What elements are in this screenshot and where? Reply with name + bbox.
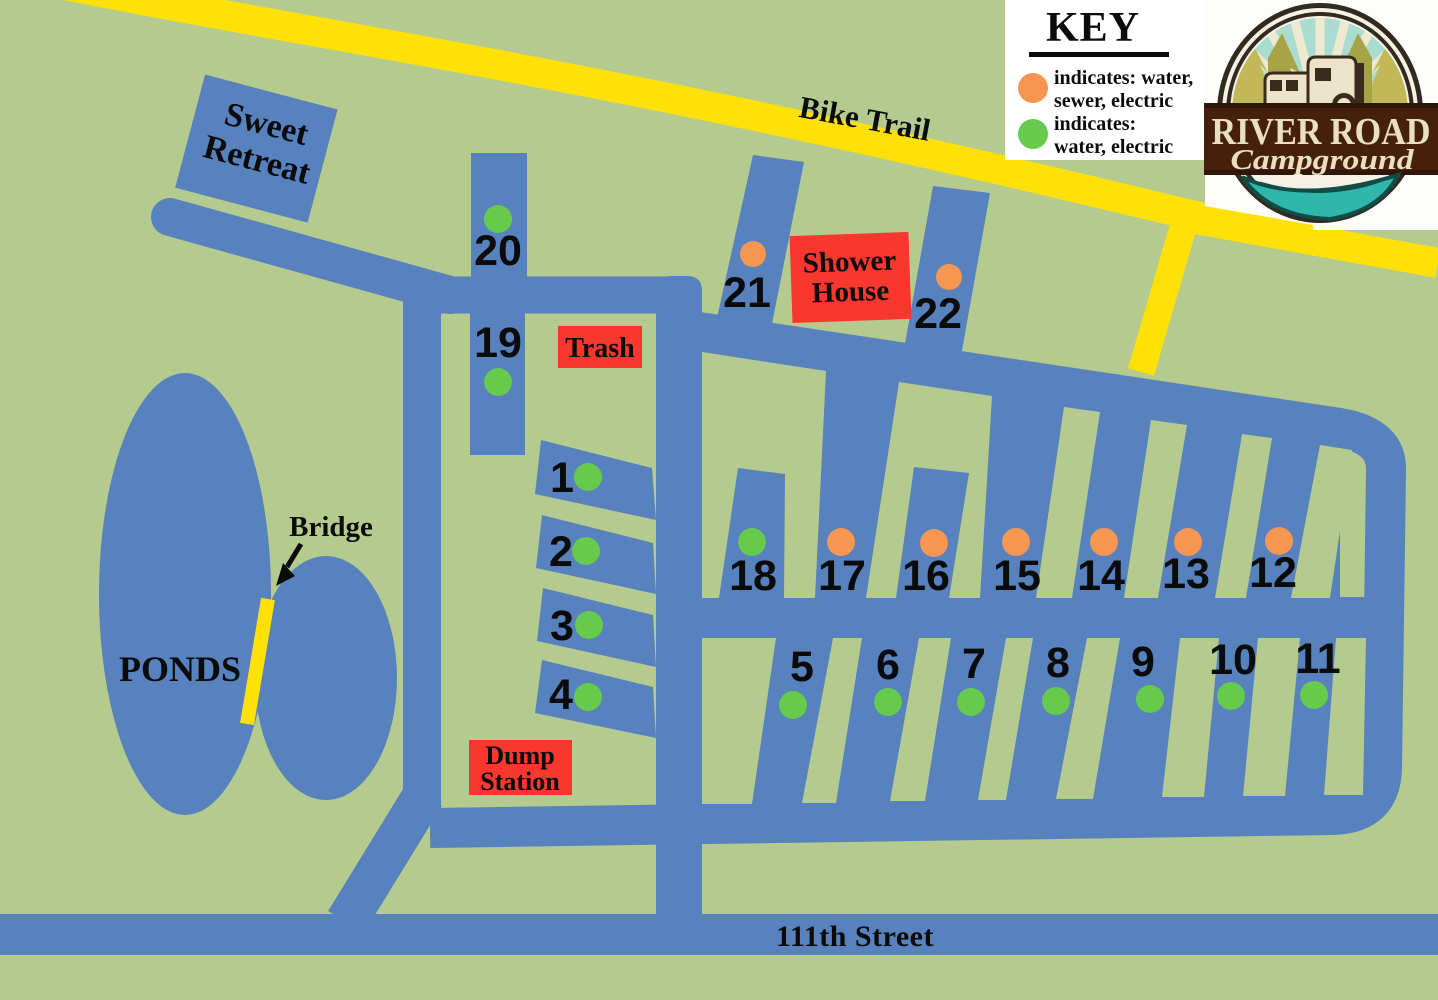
svg-text:Bridge: Bridge [289, 511, 373, 543]
svg-text:House: House [811, 275, 890, 310]
svg-text:KEY: KEY [1046, 5, 1140, 51]
svg-text:Station: Station [480, 767, 560, 796]
svg-text:20: 20 [474, 227, 522, 275]
svg-text:13: 13 [1162, 550, 1210, 598]
svg-text:21: 21 [723, 269, 771, 317]
svg-text:2: 2 [549, 528, 573, 576]
svg-text:111th Street: 111th Street [776, 920, 934, 953]
svg-text:16: 16 [902, 552, 950, 600]
svg-text:1: 1 [550, 454, 574, 502]
svg-text:3: 3 [550, 602, 574, 650]
svg-text:8: 8 [1046, 639, 1070, 687]
svg-text:14: 14 [1077, 552, 1125, 600]
svg-text:sewer, electric: sewer, electric [1054, 90, 1173, 112]
svg-text:10: 10 [1209, 636, 1257, 684]
svg-text:water, electric: water, electric [1054, 136, 1173, 158]
svg-text:5: 5 [790, 643, 814, 691]
svg-text:6: 6 [876, 641, 900, 689]
svg-text:Trash: Trash [565, 333, 635, 364]
svg-text:PONDS: PONDS [119, 649, 241, 689]
svg-text:7: 7 [962, 640, 986, 688]
svg-text:12: 12 [1249, 549, 1297, 597]
svg-text:Dump: Dump [485, 741, 554, 770]
svg-text:11: 11 [1295, 635, 1340, 683]
svg-text:9: 9 [1131, 638, 1155, 686]
svg-text:4: 4 [549, 671, 573, 719]
svg-text:indicates:: indicates: [1054, 113, 1136, 135]
svg-text:22: 22 [914, 290, 962, 338]
svg-text:19: 19 [474, 319, 522, 367]
svg-text:Campground: Campground [1231, 145, 1415, 176]
svg-text:18: 18 [729, 552, 777, 600]
svg-text:indicates: water,: indicates: water, [1054, 67, 1193, 89]
svg-text:17: 17 [818, 552, 866, 600]
svg-text:15: 15 [993, 552, 1041, 600]
